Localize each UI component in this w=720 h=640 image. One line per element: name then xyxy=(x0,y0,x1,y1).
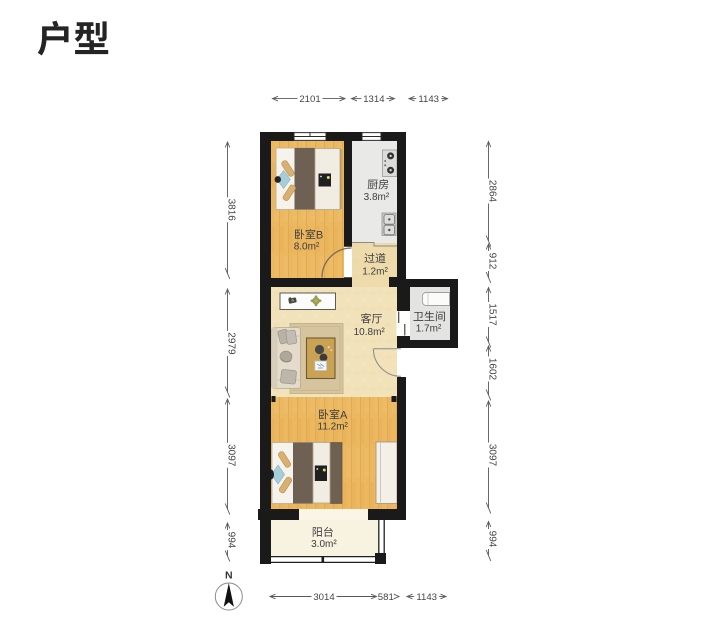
svg-text:994: 994 xyxy=(486,531,497,548)
svg-text:2979: 2979 xyxy=(225,332,236,355)
svg-text:1.2m²: 1.2m² xyxy=(362,267,388,278)
svg-text:2101: 2101 xyxy=(299,94,320,105)
svg-text:1517: 1517 xyxy=(486,303,497,326)
svg-text:1143: 1143 xyxy=(416,592,437,603)
svg-text:10.8m²: 10.8m² xyxy=(354,327,386,338)
svg-text:912: 912 xyxy=(486,253,497,270)
svg-text:N: N xyxy=(225,570,233,582)
svg-text:581: 581 xyxy=(378,592,394,603)
svg-text:1.7m²: 1.7m² xyxy=(416,324,442,335)
svg-text:3097: 3097 xyxy=(225,444,236,467)
svg-text:A: A xyxy=(340,409,348,421)
svg-text:1602: 1602 xyxy=(486,358,497,381)
svg-text:1314: 1314 xyxy=(363,94,385,105)
svg-text:2864: 2864 xyxy=(486,180,497,203)
svg-text:3097: 3097 xyxy=(486,444,497,467)
svg-text:3816: 3816 xyxy=(225,199,236,222)
svg-text:8.0m²: 8.0m² xyxy=(294,242,320,253)
svg-text:3.0m²: 3.0m² xyxy=(311,539,337,550)
svg-text:3014: 3014 xyxy=(313,592,335,603)
svg-text:1143: 1143 xyxy=(418,94,439,105)
svg-text:11.2m²: 11.2m² xyxy=(318,422,349,433)
svg-text:3.8m²: 3.8m² xyxy=(364,192,390,203)
svg-text:B: B xyxy=(316,229,323,241)
svg-text:994: 994 xyxy=(225,532,236,549)
